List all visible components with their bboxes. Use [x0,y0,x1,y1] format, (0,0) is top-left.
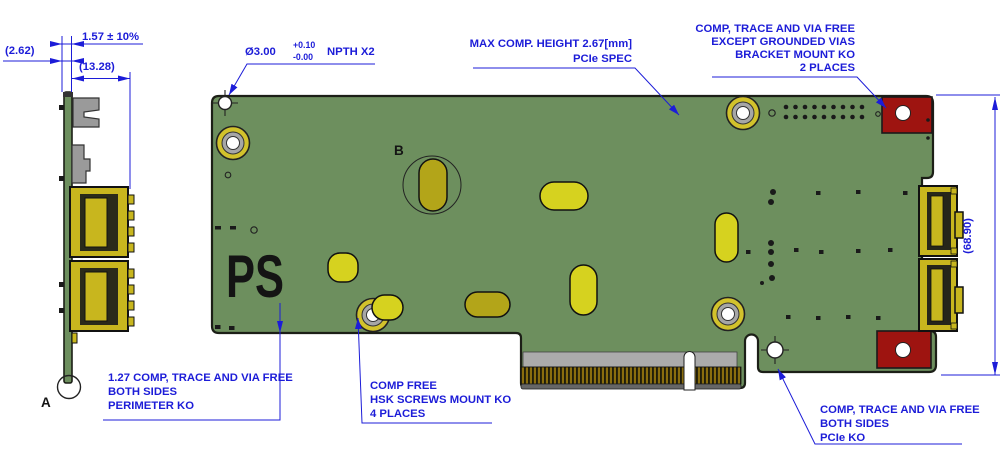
npth-dia: Ø3.00 [245,46,276,58]
dim-connector-depth: (13.28) [79,61,115,73]
side-view-bracket-clip [73,98,99,127]
pcie-ko-line2: BOTH SIDES [820,418,890,430]
bracket-ko-line2: EXCEPT GROUNDED VIAS [711,36,855,48]
side-view: A [41,92,134,410]
max-comp-line2: PCIe SPEC [573,53,632,65]
side-pin [59,308,64,313]
hsk-ko-line1: COMP FREE [370,380,437,392]
mounting-hole-top-left [217,127,250,160]
mounting-hole-bottom-right [712,298,745,331]
board-silkscreen-ps: PS [226,243,284,310]
detail-a-label: A [41,395,51,410]
dim-pcb-thickness: 1.57 ± 10% [82,31,139,43]
hsk-ko-line3: 4 PLACES [370,408,426,420]
side-pin [59,105,64,110]
pcb-outline-drawing: A 1.57 ± 10% (2.62) (13.28) [0,0,1003,449]
perimeter-ko-line3: PERIMETER KO [108,400,194,412]
dim-bracket-offset: (2.62) [5,45,35,57]
side-pin [59,176,64,181]
side-view-connector-2 [70,261,134,331]
pcie-connector-mask-band [523,352,737,367]
pcie-ko-line3: PCIe KO [820,432,865,444]
pcie-ko-line1: COMP, TRACE AND VIA FREE [820,404,980,416]
bracket-ko-region-bottom [877,331,931,368]
pcie-gold-fingers [521,367,741,384]
side-view-heatsink-edge [72,145,90,183]
pcie-edge-connector [521,352,741,390]
side-pin [59,282,64,287]
npth-tol-plus: +0.10 [293,40,315,50]
pcie-key-notch [684,352,695,390]
bracket-ko-region-top [882,97,932,133]
sff-connector-2 [919,259,963,331]
dim-board-height: (68.90) [962,218,974,254]
annotation-pcie-ko: COMP, TRACE AND VIA FREE BOTH SIDES PCIe… [778,369,980,444]
npth-suffix: NPTH X2 [327,46,375,58]
side-view-bracket-top [63,92,73,97]
max-comp-line1: MAX COMP. HEIGHT 2.67[mm] [470,38,633,50]
side-view-tab [72,333,77,343]
board-outline [212,96,936,388]
pcb-drawing-canvas: A 1.57 ± 10% (2.62) (13.28) [0,0,1003,449]
side-view-connector-1 [70,187,134,257]
detail-b-label: B [394,143,404,158]
bracket-ko-line3: BRACKET MOUNT KO [735,49,855,61]
perimeter-ko-line2: BOTH SIDES [108,386,178,398]
bracket-ko-line4: 2 PLACES [800,62,856,74]
mounting-hole-top-right [727,97,760,130]
perimeter-ko-line1: 1.27 COMP, TRACE AND VIA FREE [108,372,293,384]
hsk-ko-line2: HSK SCREWS MOUNT KO [370,394,511,406]
sff-connector-1 [919,186,963,256]
bracket-ko-line1: COMP, TRACE AND VIA FREE [695,23,855,35]
pcie-connector-edge-band [521,384,741,389]
annotation-npth: Ø3.00 +0.10 -0.00 NPTH X2 [229,40,375,95]
npth-tol-minus: -0.00 [293,52,313,62]
